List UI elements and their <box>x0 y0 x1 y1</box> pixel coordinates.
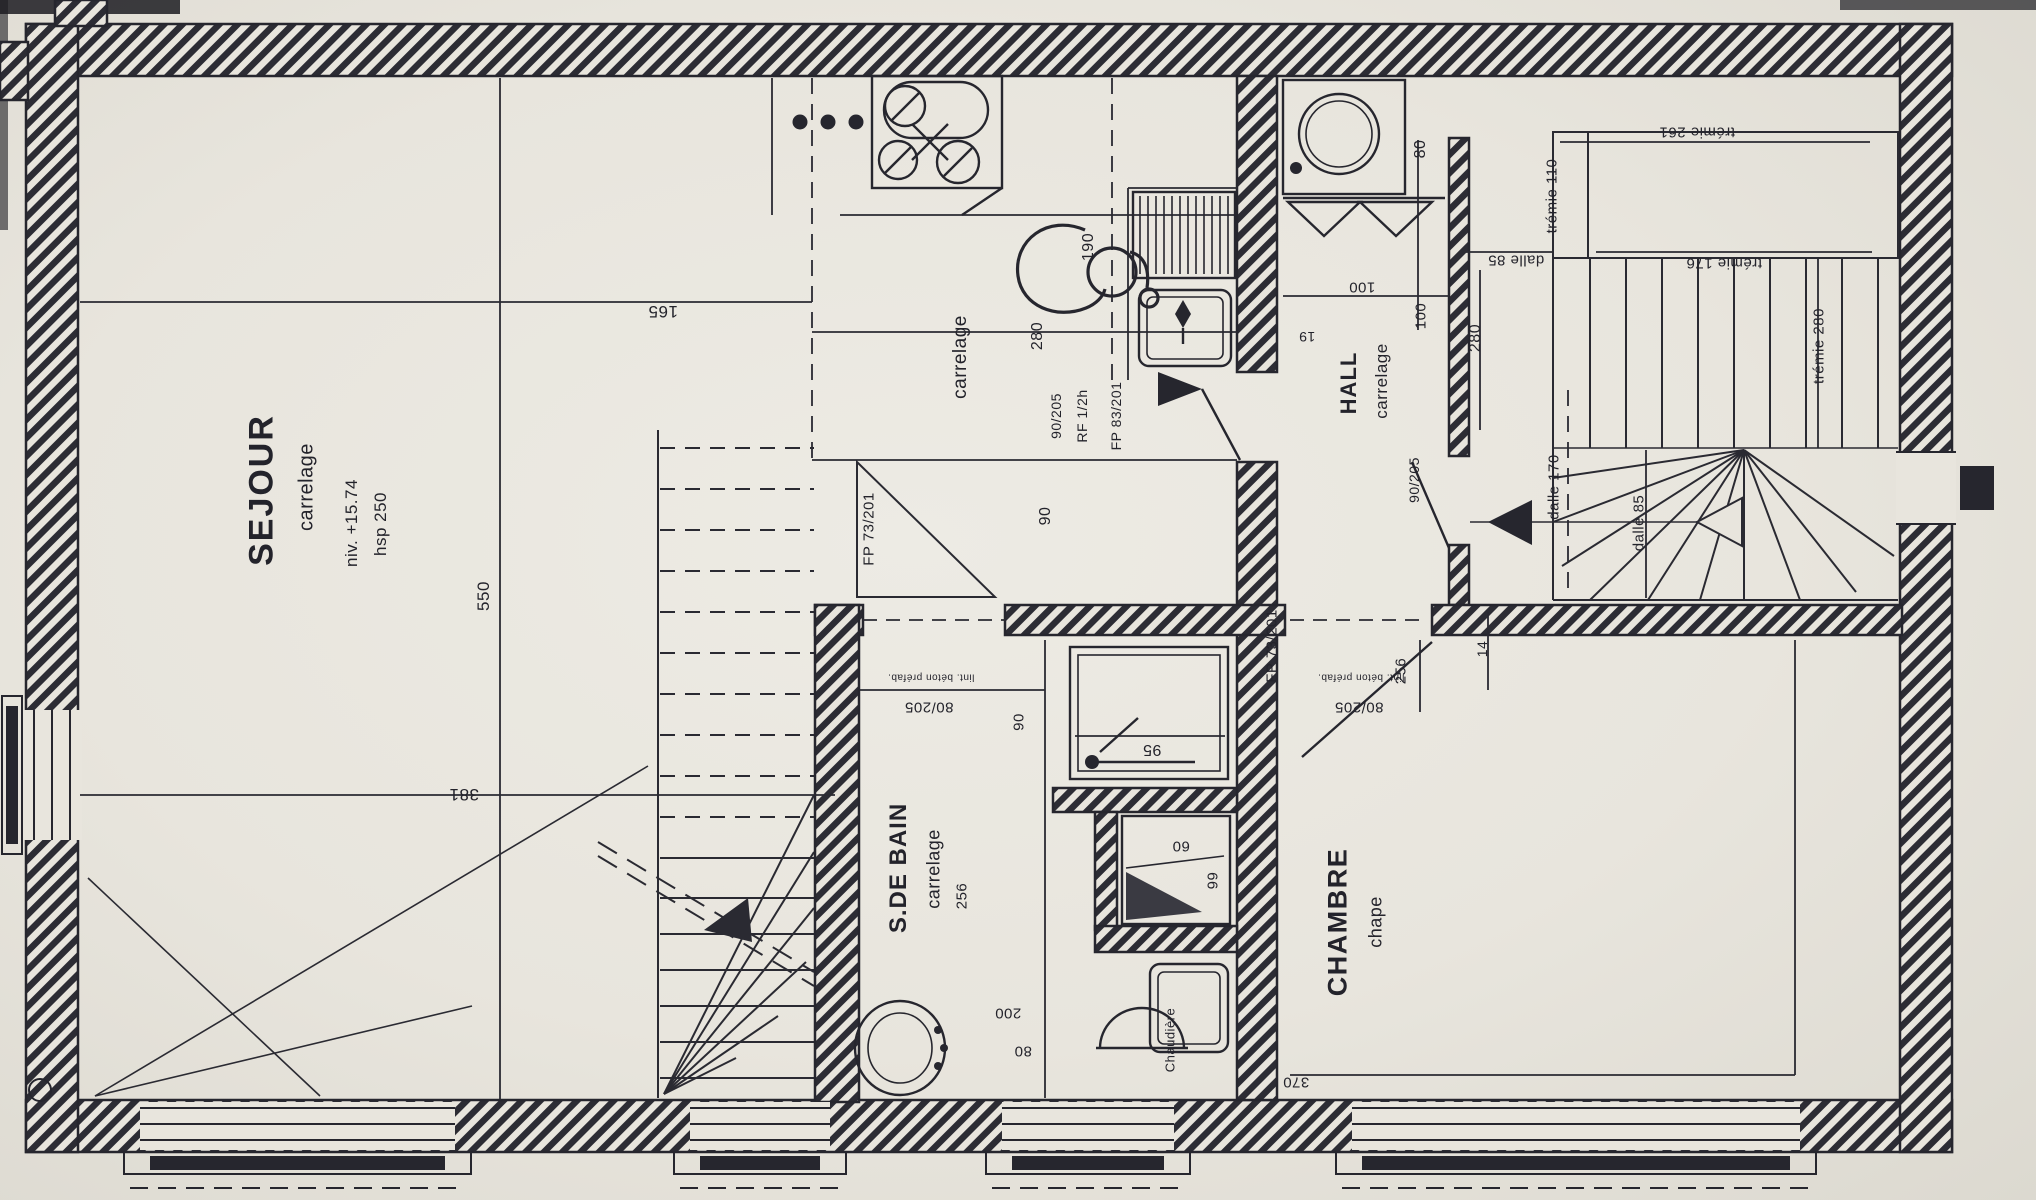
window-sejour-1 <box>124 1102 471 1188</box>
wall-bedroom-top <box>1432 605 1902 635</box>
kitchen <box>793 76 1236 366</box>
wall-shower-left <box>1095 812 1117 930</box>
room-label-bedroom: CHAMBRE <box>1323 848 1354 997</box>
room-floor-kitchen: carrelage <box>950 315 972 399</box>
window-sejour-2 <box>674 1102 846 1188</box>
room-label-hall: HALL <box>1336 352 1362 415</box>
wall-bath-left <box>815 605 859 1102</box>
dim-60-shower: 60 <box>1172 838 1190 855</box>
window-bedroom <box>1336 1102 1816 1188</box>
wall-center-lower <box>1237 462 1277 1100</box>
dim-280-kitchen: 280 <box>1029 322 1047 350</box>
dim-190: 190 <box>1080 233 1098 261</box>
dim-80-wc: 80 <box>1014 1043 1032 1060</box>
staircase-right <box>1470 132 1898 600</box>
tremie-176-label: trémie 176 <box>1686 255 1762 272</box>
door-label-fp73-stairs: FP 73/201 <box>861 492 878 565</box>
tremie-261-label: trémie 261 <box>1659 124 1735 141</box>
window-bath <box>986 1102 1190 1188</box>
door-swing-fp73-stairs <box>857 462 995 597</box>
stair-treads-upper <box>1590 258 1878 448</box>
dim-280-stairs: 280 <box>1467 324 1485 352</box>
washing-machine-icon <box>1283 80 1405 194</box>
wall-hall-stairs-lower <box>1449 545 1469 605</box>
knob-dot <box>849 115 864 130</box>
wall-shower-top <box>1053 788 1237 812</box>
wall-center-upper <box>1237 76 1277 372</box>
wall-stub-left <box>0 42 28 100</box>
level-annotation: niv. +15.74 <box>342 479 362 567</box>
door-fire-rating: RF 1/2h <box>1074 389 1090 442</box>
dalle-170-label: dalle 170 <box>1546 454 1563 519</box>
dim-370: 370 <box>1283 1074 1310 1091</box>
door-size-stairs: 90/205 <box>1406 457 1422 503</box>
dim-66-shower: 66 <box>1204 872 1221 890</box>
dim-200: 200 <box>995 1005 1022 1022</box>
room-label-sejour: SEJOUR <box>243 414 282 566</box>
tremie-opening <box>1553 132 1898 258</box>
boiler-label: Chaudière <box>1163 1008 1178 1073</box>
ceiling-annotation: hsp 250 <box>371 492 391 556</box>
door-label-fp83: FP 83/201 <box>1108 382 1124 451</box>
stair-direction-arrow <box>704 898 752 942</box>
room-label-bath: S.DE BAIN <box>885 803 913 933</box>
wall-shower-bottom <box>1095 926 1237 952</box>
sejour-stair-fan <box>664 795 814 1094</box>
knob-dot <box>821 115 836 130</box>
tremie-280-label: trémie 280 <box>1811 308 1828 384</box>
room-floor-bath: carrelage <box>924 829 945 909</box>
dalle-85-top-label: dalle 85 <box>1488 252 1545 269</box>
stair-arrow-open <box>1697 498 1742 546</box>
dim-95-tub: 95 <box>1143 740 1162 758</box>
dim-550: 550 <box>474 581 494 611</box>
room-floor-sejour: carrelage <box>296 443 319 531</box>
door-size-bedroom: 80/205 <box>1335 699 1384 716</box>
wall-right <box>1900 24 1952 1152</box>
dim-19: 19 <box>1299 329 1316 345</box>
dim-256-bath: 256 <box>954 883 971 910</box>
door-label-fp73-bedroom: FP 73/201 <box>1264 609 1281 682</box>
hall-shelf-icon <box>1283 198 1445 236</box>
knob-dot <box>793 115 808 130</box>
dim-90-bath: 90 <box>1011 713 1028 731</box>
dalle-85-stairs-label: dalle 85 <box>1631 495 1648 552</box>
room-floor-bedroom: chape <box>1366 896 1387 948</box>
dimension-lines <box>80 78 1872 1100</box>
lintel-bath-label: lint. béton préfab. <box>888 672 975 683</box>
dim-90-kitchen: 90 <box>1037 507 1055 526</box>
window-stairs-right <box>1896 452 1994 524</box>
room-floor-hall: carrelage <box>1372 343 1392 418</box>
tremie-110-label: trémie 110 <box>1544 159 1561 234</box>
dim-80-machine: 80 <box>1412 140 1430 159</box>
stair-arrow-filled <box>1488 500 1532 545</box>
window-left <box>2 696 82 854</box>
wall-top <box>26 24 1952 76</box>
floor-plan: SEJOUR carrelage niv. +15.74 hsp 250 165… <box>0 0 2036 1200</box>
dim-100-b: 100 <box>1413 303 1430 330</box>
bathtub-icon <box>1070 647 1228 779</box>
dim-165: 165 <box>648 301 678 321</box>
door-size-hall: 90/205 <box>1048 393 1064 439</box>
wall-stub-top <box>55 0 107 26</box>
dim-256-bedroom: 256 <box>1393 658 1410 685</box>
dim-14: 14 <box>1474 641 1490 658</box>
stove-icon <box>872 76 1002 215</box>
door-size-bath: 80/205 <box>905 699 954 716</box>
shower-icon <box>1122 816 1230 924</box>
lintel-bedroom-label: lint. béton préfab. <box>1318 672 1405 683</box>
wall-bath-top-right <box>1005 605 1285 635</box>
washbasin-icon <box>855 1001 948 1095</box>
door-arrow-hall <box>1158 372 1202 406</box>
wall-left <box>26 24 78 1152</box>
dim-381: 381 <box>449 784 479 804</box>
dim-100-a: 100 <box>1349 279 1376 296</box>
wall-hall-stairs-upper <box>1449 138 1469 456</box>
